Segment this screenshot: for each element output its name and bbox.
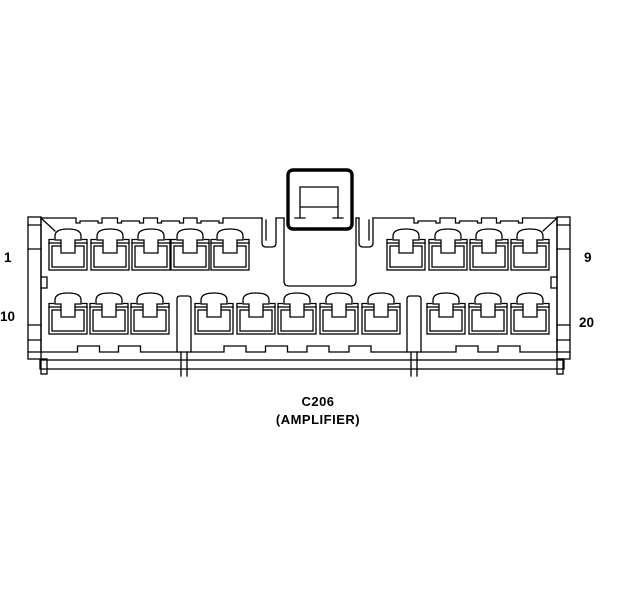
- pin-label-10: 10: [0, 309, 15, 324]
- terminal-pin: [320, 293, 358, 334]
- cavity-divider: [177, 296, 191, 376]
- terminal-pin: [427, 293, 465, 334]
- left-end-cap-ticks: [28, 225, 41, 352]
- connector-diagram: 1 10 9 20 C206 (AMPLIFIER): [0, 0, 624, 600]
- latch-tab: [288, 170, 352, 229]
- connector-id-label: C206: [301, 394, 334, 409]
- pin-label-9: 9: [584, 250, 592, 265]
- terminal-pin: [278, 293, 316, 334]
- right-end-cap-ticks: [557, 225, 570, 352]
- terminal-pins: [49, 229, 549, 334]
- terminal-pin: [132, 229, 170, 270]
- terminal-pin: [469, 293, 507, 334]
- connector-name-label: (AMPLIFIER): [276, 412, 360, 427]
- terminal-pin: [429, 229, 467, 270]
- terminal-pin: [49, 229, 87, 270]
- terminal-pin: [49, 293, 87, 334]
- terminal-pin: [211, 229, 249, 270]
- rail-left-foot: [41, 359, 47, 374]
- terminal-pin: [91, 229, 129, 270]
- terminal-pin: [90, 293, 128, 334]
- terminal-pin: [195, 293, 233, 334]
- terminal-pin: [171, 229, 209, 270]
- housing-bottom-edge: [41, 346, 557, 352]
- pin-label-20: 20: [579, 315, 594, 330]
- terminal-pin: [511, 229, 549, 270]
- bottom-rail: [40, 360, 564, 369]
- connector-diagram-page: 1 10 9 20 C206 (AMPLIFIER): [0, 0, 624, 600]
- pin-label-1: 1: [4, 250, 12, 265]
- terminal-pin: [387, 229, 425, 270]
- terminal-pin: [237, 293, 275, 334]
- terminal-pin: [511, 293, 549, 334]
- terminal-pin: [470, 229, 508, 270]
- right-end-cap: [557, 217, 570, 359]
- cavity-divider: [407, 296, 421, 376]
- terminal-pin: [131, 293, 169, 334]
- terminal-pin: [362, 293, 400, 334]
- rail-right-foot: [557, 359, 563, 374]
- left-end-cap: [28, 217, 41, 359]
